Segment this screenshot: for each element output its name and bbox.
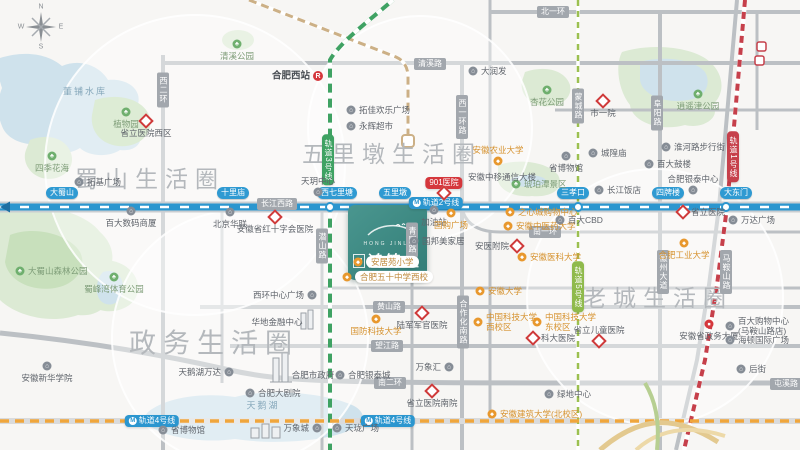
tree-icon: ♣ bbox=[233, 40, 242, 49]
mall-icon: ⌂ bbox=[595, 186, 604, 195]
metro-line-badge-label: 轨道1号线 bbox=[729, 136, 737, 177]
mall-icon: ⌂ bbox=[246, 389, 255, 398]
poi-label: 大润发 bbox=[481, 66, 507, 76]
poi-label: 安医附院 bbox=[475, 241, 509, 251]
district-label: 政务生活圈 bbox=[129, 322, 299, 361]
poi-label: 万象汇 bbox=[415, 362, 441, 372]
road-label: 清溪路 bbox=[414, 58, 446, 70]
poi-label: 杏花公园 bbox=[530, 97, 564, 107]
poi-label: 安徽中移通信大楼 bbox=[468, 172, 536, 182]
road-label: 黄山路 bbox=[373, 301, 405, 313]
metro-station-badge: 大蜀山 bbox=[46, 187, 78, 199]
road-label: 潜山路 bbox=[316, 229, 328, 264]
poi-label: 拓基广场 bbox=[87, 177, 121, 187]
metro-line-badge: 轨道5号线 bbox=[572, 261, 584, 312]
road-label: 长江西路 bbox=[257, 198, 297, 210]
mall-icon: ⌂ bbox=[159, 426, 168, 435]
poi-label: 安徽省红十字会医院 bbox=[237, 224, 314, 234]
poi-label: 合肥工业大学 bbox=[658, 250, 709, 260]
poi-label: 陆军军官医院 bbox=[396, 320, 447, 330]
poi-label: 万象城 bbox=[283, 423, 309, 433]
mall-icon: ⌂ bbox=[75, 178, 84, 187]
poi-label: 百大购物中心 (马鞍山路店) bbox=[738, 316, 789, 336]
compass-e: E bbox=[59, 24, 64, 31]
tree-icon: ♣ bbox=[16, 267, 25, 276]
poi-label: 安徽建筑大学(北校区) bbox=[500, 409, 582, 419]
mall-icon: ⌂ bbox=[645, 160, 654, 169]
poi-label: 安徽农业大学 bbox=[472, 145, 523, 155]
metro-line-badge-label: 轨道4号线 bbox=[139, 417, 175, 425]
mall-icon: ⌂ bbox=[313, 424, 322, 433]
university-icon: ◆ bbox=[488, 410, 497, 419]
mall-icon: ⌂ bbox=[469, 67, 478, 76]
poi-label: 城隍庙 bbox=[601, 148, 627, 158]
mall-icon: ⌂ bbox=[127, 207, 136, 216]
school-icon: ◆ bbox=[354, 258, 363, 267]
road-label: 阜阳路 bbox=[651, 96, 663, 131]
mall-icon: ⌂ bbox=[347, 106, 356, 115]
university-icon: ◆ bbox=[447, 209, 456, 218]
university-icon: ◆ bbox=[506, 208, 515, 217]
city-map: N E S W HONG JINLI 鸿锦里 蜀山生活圈五里墩生活圈老城生活圈政… bbox=[0, 0, 800, 450]
poi-label: 万达广场 bbox=[741, 215, 775, 225]
mall-icon: ⌂ bbox=[689, 186, 698, 195]
poi-label: 合肥五十中学西校 bbox=[355, 271, 433, 283]
poi-label: 合肥大剧院 bbox=[258, 388, 301, 398]
university-icon: ◆ bbox=[680, 239, 689, 248]
mall-icon: ⌂ bbox=[545, 390, 554, 399]
road-label: 合作化南路 bbox=[457, 296, 469, 349]
poi-label: 西环中心广场 bbox=[253, 290, 304, 300]
university-icon: ◆ bbox=[533, 318, 542, 327]
poi-label: 省立医院 bbox=[691, 207, 725, 217]
poi-label: 董铺水库 bbox=[63, 87, 107, 98]
tree-icon: ♣ bbox=[694, 90, 703, 99]
poi-label: 华地金融中心 bbox=[251, 317, 302, 327]
university-icon: ◆ bbox=[504, 222, 513, 231]
mall-icon: ⌂ bbox=[556, 216, 565, 225]
metro-station-badge: 五里墩 bbox=[379, 187, 411, 199]
metro-station-badge: 四牌楼 bbox=[652, 187, 684, 199]
mall-icon: ⌂ bbox=[445, 363, 454, 372]
poi-label: 安徽中医药大学 bbox=[516, 221, 576, 231]
compass-w: W bbox=[18, 24, 25, 31]
tree-icon: ♣ bbox=[48, 152, 57, 161]
road-label: 西一环路 bbox=[456, 95, 468, 139]
mall-icon: ⌂ bbox=[662, 143, 671, 152]
poi-label: 市一院 bbox=[590, 108, 616, 118]
poi-label: 天玥中心 bbox=[301, 176, 335, 186]
poi-label: 国防科技大学 bbox=[350, 326, 401, 336]
poi-label: 合肥市政府 bbox=[292, 370, 335, 380]
mall-icon: ⌂ bbox=[410, 237, 419, 246]
poi-label: 绿地中心 bbox=[557, 389, 591, 399]
mall-icon: ⌂ bbox=[226, 208, 235, 217]
poi-label: 天鹅湖万达 bbox=[178, 367, 221, 377]
tree-icon: ♣ bbox=[122, 108, 131, 117]
compass-n: N bbox=[38, 4, 43, 11]
metro-station-badge: 大东门 bbox=[720, 187, 752, 199]
mall-icon: ⌂ bbox=[729, 216, 738, 225]
mall-icon: ⌂ bbox=[336, 371, 345, 380]
poi-label: 永辉超市 bbox=[359, 121, 393, 131]
poi-label: 国购广场 bbox=[434, 220, 468, 230]
metro-line-badge-label: 轨道5号线 bbox=[574, 266, 582, 307]
mall-icon: ⌂ bbox=[347, 122, 356, 131]
poi-label: 百大CBD bbox=[568, 215, 603, 225]
mall-icon: ⌂ bbox=[314, 188, 323, 197]
university-icon: ◆ bbox=[476, 287, 485, 296]
school-icon: ◆ bbox=[343, 273, 352, 282]
road-label: 马鞍山路 bbox=[720, 250, 732, 294]
metro-logo-icon: M bbox=[129, 417, 137, 425]
road-label: 西二环 bbox=[157, 73, 169, 108]
poi-label: 清溪公园 bbox=[220, 51, 254, 61]
mall-icon: ⌂ bbox=[333, 424, 342, 433]
railway-station-icon: R bbox=[313, 71, 323, 81]
poi-label: 省博物馆 bbox=[171, 425, 205, 435]
poi-label: 天珑广场 bbox=[345, 423, 379, 433]
poi-label: 科大医院 bbox=[541, 333, 575, 343]
poi-label: 安徽医科大学 bbox=[530, 252, 581, 262]
road-label: 北一环 bbox=[537, 6, 569, 18]
university-icon: ◆ bbox=[372, 315, 381, 324]
mall-icon: ⌂ bbox=[562, 152, 571, 161]
mall-icon: ⌂ bbox=[726, 322, 735, 331]
metro-line-badge-label: 轨道4号线 bbox=[375, 417, 411, 425]
poi-label: 合肥西站 bbox=[272, 70, 310, 81]
metro-line-badge-label: 轨道3号线 bbox=[324, 139, 332, 180]
poi-label: 蜀峰湾体育公园 bbox=[84, 284, 144, 294]
poi-label: 天鹅湖 bbox=[246, 401, 279, 412]
poi-label: 省立医院西区 bbox=[120, 128, 171, 138]
poi-label: 后街 bbox=[749, 364, 766, 374]
university-icon: ◆ bbox=[494, 157, 503, 166]
poi-label: 合肥银泰城 bbox=[348, 370, 391, 380]
logo-latin-name: HONG JINLI bbox=[363, 241, 411, 247]
tree-icon: ♣ bbox=[543, 86, 552, 95]
mall-icon: ⌂ bbox=[225, 368, 234, 377]
poi-label: 国邦美家居 bbox=[422, 236, 465, 246]
compass-s: S bbox=[39, 44, 44, 51]
bird-swoosh-icon bbox=[366, 221, 410, 239]
poi-label: 长江饭店 bbox=[607, 185, 641, 195]
compass-rose-icon bbox=[25, 11, 57, 43]
poi-label: 省博物馆 bbox=[549, 163, 583, 173]
poi-label: 合肥银泰中心 bbox=[667, 174, 718, 184]
road-label: 望江路 bbox=[371, 340, 403, 352]
mall-icon: ⌂ bbox=[726, 336, 735, 345]
poi-label: 省立儿童医院 bbox=[573, 325, 624, 335]
poi-label: 四季花海 bbox=[35, 163, 69, 173]
poi-label: 逍遥津公园 bbox=[677, 101, 720, 111]
road-label: 蒙城路 bbox=[572, 89, 584, 124]
poi-label: 安居苑小学 bbox=[366, 256, 419, 268]
mall-icon: ⌂ bbox=[43, 362, 52, 371]
university-icon: ◆ bbox=[518, 253, 527, 262]
poi-label: 百大数码商厦 bbox=[105, 218, 156, 228]
metro-line-badge-label: 轨道2号线 bbox=[423, 199, 459, 207]
tree-icon: ♣ bbox=[110, 273, 119, 282]
road-label: 屯溪路 bbox=[770, 378, 800, 390]
mall-icon: ⌂ bbox=[430, 206, 439, 215]
poi-label: 安徽新华学院 bbox=[21, 373, 72, 383]
poi-label: 安徽大学 bbox=[488, 286, 522, 296]
poi-label: 拓佳欢乐广场 bbox=[359, 105, 410, 115]
mall-icon: ⌂ bbox=[737, 365, 746, 374]
poi-label: 中国科技大学 西校区 bbox=[486, 312, 537, 332]
poi-label: 淮河路步行街 bbox=[674, 142, 725, 152]
university-icon: ◆ bbox=[474, 318, 483, 327]
metro-station-badge: 十里庙 bbox=[217, 187, 249, 199]
poi-label: 大蜀山森林公园 bbox=[28, 266, 88, 276]
mall-icon: ⌂ bbox=[589, 149, 598, 158]
mall-icon: ⌂ bbox=[308, 291, 317, 300]
poi-label: 百大鼓楼 bbox=[657, 159, 691, 169]
metro-line-badge: 轨道1号线 bbox=[727, 131, 739, 182]
metro-logo-icon: M bbox=[413, 199, 421, 207]
government-building-icon: ■ bbox=[705, 320, 714, 329]
poi-label: 省立医院南院 bbox=[406, 398, 457, 408]
metro-station-badge: 西七里塘 bbox=[317, 187, 357, 199]
poi-label: 海顿国际广场 bbox=[738, 335, 789, 345]
